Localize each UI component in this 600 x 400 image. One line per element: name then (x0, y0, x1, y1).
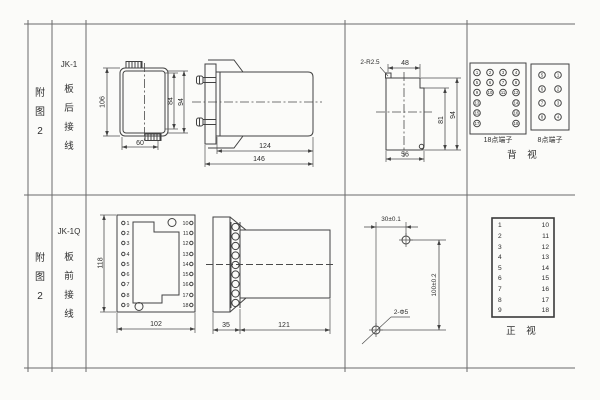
rear-view-caption: 背 视 (492, 150, 556, 161)
figure-sheet: 106 84 94 60 124 146 (0, 0, 600, 400)
terminal-number: 11 (183, 231, 189, 237)
terminal-holes-18: 1 2 3 4 5 6 7 8 9 10 11 12 13 14 15 16 1… (474, 69, 520, 127)
relay-body (216, 72, 313, 136)
mounting-hole (168, 219, 176, 227)
terminal-comb-bottom (145, 134, 161, 141)
terminal-number: 3 (502, 70, 505, 75)
bracket-top (208, 60, 243, 72)
wiring-label-row1: 板 后 接 线 (52, 80, 86, 156)
dim-121: 121 (278, 322, 290, 329)
terminal-number: 1 (557, 73, 560, 78)
terminal-number: 1 (127, 221, 130, 227)
terminal-number: 14 (183, 262, 189, 268)
jk1-rear-view: 1 2 3 4 5 6 7 8 9 10 11 12 13 14 15 16 1… (470, 63, 569, 134)
dim-106: 106 (100, 96, 107, 108)
figure-label-row2: 附 图 2 (28, 249, 52, 306)
terminal-number: 11 (501, 90, 506, 95)
jk1-front-view: 106 84 94 60 (100, 62, 189, 151)
terminal-number: 16 (514, 111, 519, 116)
terminal-number: 3 (127, 241, 130, 247)
cutout-outline (386, 78, 424, 150)
terminal-number: 6 (498, 275, 502, 282)
jk1q-side-view: 35 121 (206, 217, 336, 334)
terminal-number: 10 (183, 221, 189, 227)
terminal-number: 10 (488, 90, 493, 95)
terminal-number: 4 (498, 254, 502, 261)
terminal-block-8 (531, 64, 569, 130)
terminal-number: 15 (542, 275, 550, 282)
terminal-number: 18 (183, 303, 189, 309)
dim-corner-radius: 2-R2.5 (360, 59, 380, 66)
terminal-number: 12 (542, 244, 550, 251)
terminal-number: 17 (542, 297, 550, 304)
dim-100: 100±0.2 (431, 273, 438, 296)
terminal-comb-top (126, 62, 142, 69)
terminal-number: 14 (542, 265, 550, 272)
terminal-table-right-column: 10 11 12 13 14 15 16 17 18 (542, 222, 550, 314)
terminal-number: 6 (541, 87, 544, 92)
terminal-number: 13 (542, 254, 550, 261)
terminal-number: 5 (127, 262, 130, 268)
terminal-number: 10 (542, 222, 550, 229)
model-label-jk1: JK-1 (52, 60, 86, 70)
terminal-number: 1 (476, 70, 479, 75)
terminal-number: 1 (498, 222, 502, 229)
terminal-holes-8: 5 1 6 2 7 3 8 4 (539, 72, 562, 121)
mounting-flange (205, 64, 216, 144)
relay-outline-outer (120, 68, 168, 136)
terminal-stack (232, 223, 239, 306)
terminal-number: 4 (127, 252, 130, 258)
terminal-number: 7 (498, 286, 502, 293)
terminal-number: 4 (557, 115, 560, 120)
dim-102: 102 (150, 321, 162, 328)
terminal-number: 6 (127, 272, 130, 278)
terminal-bolt-top (197, 76, 217, 84)
terminal-number: 8 (127, 293, 130, 299)
terminal-number: 16 (183, 282, 189, 288)
terminal-number: 12 (514, 90, 519, 95)
jk1-side-view: 124 146 (192, 60, 322, 167)
terminal-number: 2 (557, 87, 560, 92)
terminal-number: 6 (489, 80, 492, 85)
front-view-caption: 正 视 (491, 326, 555, 337)
terminal-number: 8 (541, 115, 544, 120)
dim-60: 60 (136, 140, 144, 147)
jk1q-drill-view: 30±0.1 100±0.2 2-Φ5 (362, 216, 446, 344)
terminal-number: 8 (498, 297, 502, 304)
dim-30: 30±0.1 (381, 216, 401, 223)
terminal-number: 12 (183, 241, 189, 247)
dim-94: 94 (178, 98, 185, 106)
terminal-8-label: 8点端子 (522, 137, 578, 145)
dim-118: 118 (98, 257, 105, 268)
terminal-bolt-bottom (197, 118, 217, 126)
figure-label-row1: 附 图 2 (28, 84, 52, 141)
bracket-bottom (208, 136, 243, 148)
dim-48: 48 (401, 60, 409, 67)
technical-drawing: 106 84 94 60 124 146 (0, 0, 600, 400)
terminal-number: 4 (515, 70, 518, 75)
terminal-number: 16 (542, 286, 550, 293)
terminal-table-left-column: 1 2 3 4 5 6 7 8 9 (498, 222, 502, 314)
corner-radius-mark (419, 144, 423, 148)
terminal-number: 7 (127, 282, 130, 288)
terminal-number: 9 (498, 307, 502, 314)
terminal-number: 5 (498, 265, 502, 272)
terminal-number: 5 (476, 80, 479, 85)
terminal-number: 15 (475, 111, 480, 116)
dim-35: 35 (222, 322, 230, 329)
terminal-number: 7 (541, 101, 544, 106)
terminal-number: 15 (183, 272, 189, 278)
terminal-number: 11 (542, 233, 549, 240)
terminal-number: 18 (542, 307, 550, 314)
dim-146: 146 (253, 156, 265, 163)
terminal-number: 7 (502, 80, 505, 85)
jk1q-front-view: 1 2 3 4 5 6 7 8 9 10 11 12 13 14 15 16 1… (98, 215, 196, 333)
terminal-number: 2 (489, 70, 492, 75)
terminal-number: 18 (514, 121, 519, 126)
terminal-number: 13 (475, 101, 480, 106)
dim-81: 81 (438, 116, 445, 124)
dim-84: 84 (168, 97, 175, 105)
terminal-number: 8 (515, 80, 518, 85)
terminal-number: 5 (541, 73, 544, 78)
jk1-panel-cutout: 2-R2.5 48 81 94 56 (360, 59, 461, 162)
terminal-number: 13 (183, 252, 189, 258)
terminal-number: 17 (475, 121, 480, 126)
terminal-number: 14 (514, 101, 519, 106)
terminal-number: 3 (498, 244, 502, 251)
cover-outline (133, 222, 179, 303)
dim-holes: 2-Φ5 (394, 309, 409, 316)
terminal-18-label: 18点端子 (466, 137, 530, 145)
relay-body (240, 230, 330, 298)
relay-outline-inner (123, 71, 165, 133)
model-label-jk1q: JK-1Q (52, 227, 86, 237)
jk1q-terminal-table: 1 2 3 4 5 6 7 8 9 10 11 12 13 14 15 16 1… (492, 218, 554, 317)
terminal-number: 17 (183, 293, 189, 299)
mounting-hole (135, 303, 143, 311)
terminal-number: 2 (498, 233, 502, 240)
terminal-number: 3 (557, 101, 560, 106)
terminal-number: 2 (127, 231, 130, 237)
dim-56: 56 (401, 152, 409, 159)
terminal-column-right: 10 11 12 13 14 15 16 17 18 (183, 221, 194, 309)
terminal-number: 9 (127, 303, 130, 309)
terminal-number: 9 (476, 90, 479, 95)
drill-hole-bottom (369, 323, 383, 337)
wiring-label-row2: 板 前 接 线 (52, 248, 86, 324)
dim-94b: 94 (450, 111, 457, 119)
dim-124: 124 (259, 143, 271, 150)
terminal-column-left: 1 2 3 4 5 6 7 8 9 (122, 221, 130, 309)
